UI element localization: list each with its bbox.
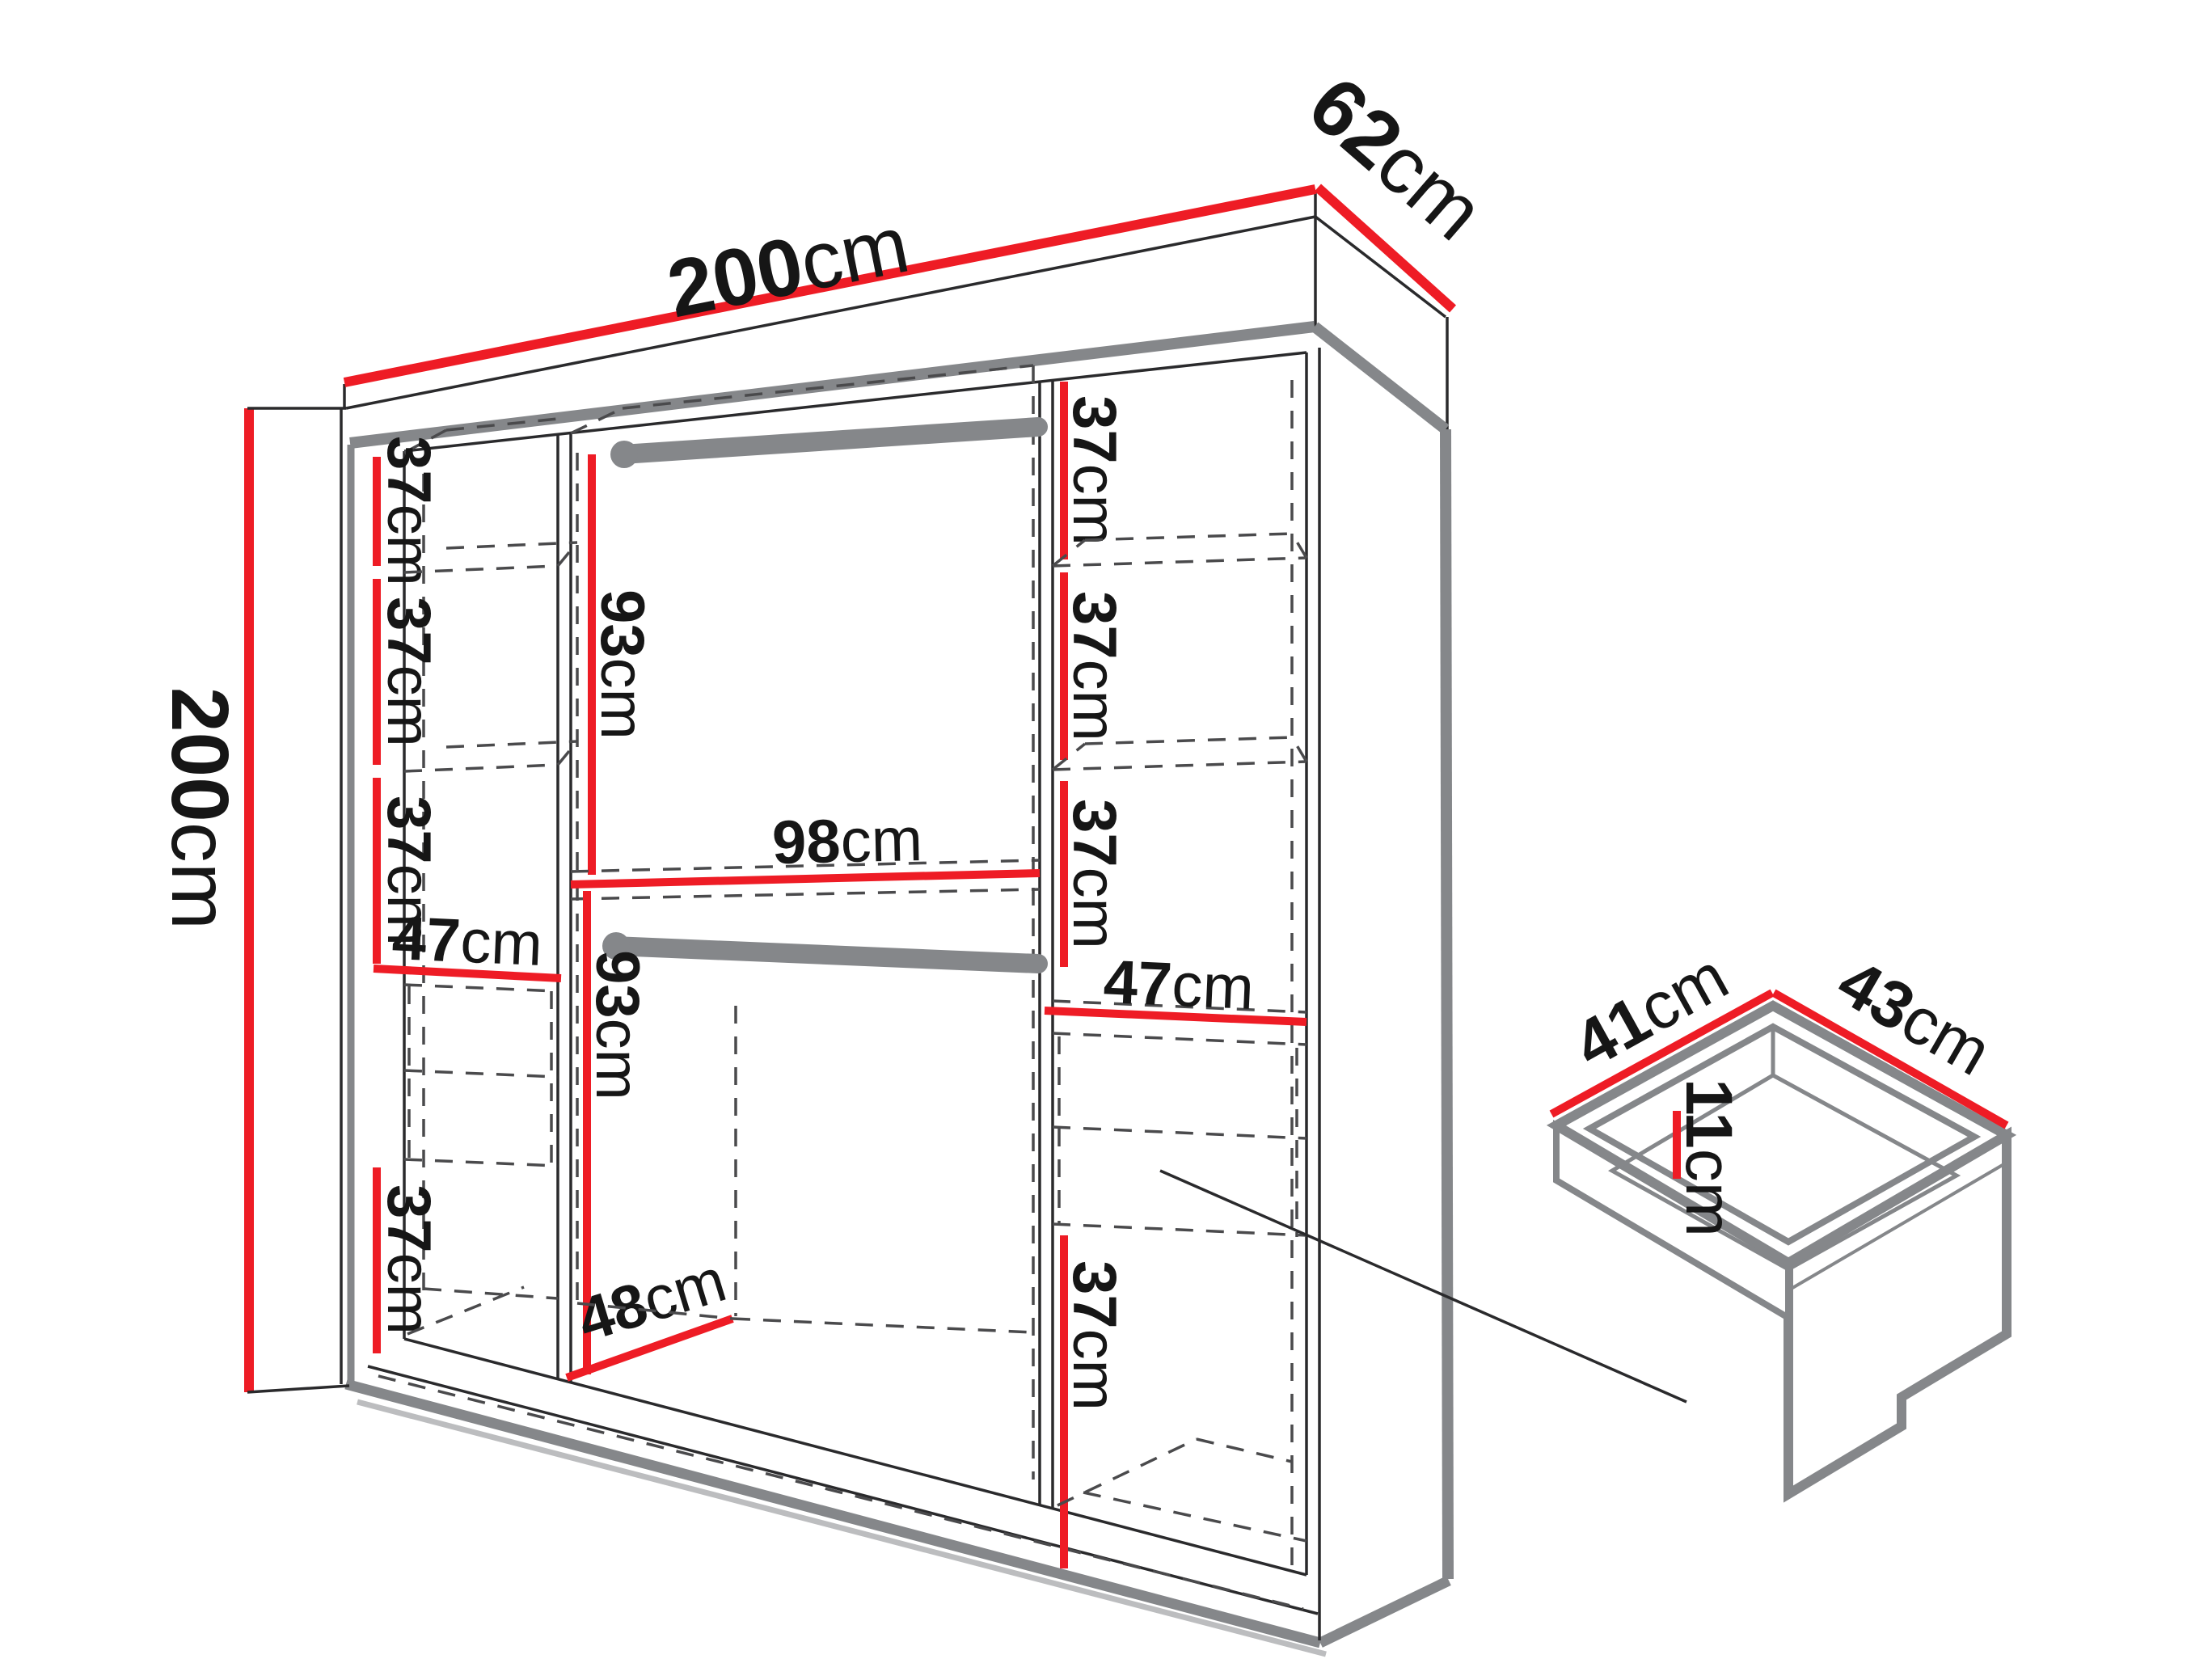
right-outer-edge bbox=[1446, 429, 1448, 1579]
middle-section: 93cm 98cm 93cm 48cm bbox=[567, 427, 1040, 1378]
left-drawer-top-dashed bbox=[404, 985, 558, 991]
right-shelf-width-label: 47cm bbox=[1102, 948, 1255, 1023]
right-floor-back-dashed bbox=[1197, 1439, 1292, 1462]
left-shelf2-dashed bbox=[404, 765, 558, 771]
middle-width-label: 98cm bbox=[771, 805, 923, 877]
right-floor-depth-dashed bbox=[1057, 1439, 1197, 1505]
right-shelf2-depth-dashed1 bbox=[1053, 744, 1085, 770]
middle-floor-back-dashed2 bbox=[732, 1319, 1033, 1332]
left-drawer-bottom-dashed bbox=[404, 1159, 558, 1166]
interior-floor bbox=[404, 1339, 1307, 1575]
right-shelf2-dashed bbox=[1053, 762, 1307, 770]
left-shelf-width-label: 47cm bbox=[390, 904, 543, 979]
left-column: 37cm 37cm 37cm 47cm 37cm bbox=[374, 436, 577, 1353]
drawer-height-label: 11cm bbox=[1672, 1079, 1746, 1237]
middle-shelf-front-dashed bbox=[571, 889, 1040, 899]
bottom-right-edge bbox=[1320, 1581, 1449, 1643]
left-shelf2-label: 37cm bbox=[374, 597, 443, 747]
left-shelf1-label: 37cm bbox=[374, 436, 443, 586]
plinth-dashed bbox=[378, 1376, 1303, 1609]
left-shelf1-depth-dashed bbox=[558, 542, 577, 566]
header-edge bbox=[350, 327, 1315, 443]
right-drawer-divider-dashed bbox=[1053, 1127, 1307, 1138]
depth-dimension-label: 62cm bbox=[1292, 60, 1501, 258]
upper-rod-end-cap bbox=[610, 441, 638, 468]
left-drawer-divider-dashed bbox=[404, 1070, 558, 1077]
upper-hanging-rod bbox=[623, 427, 1038, 454]
plinth-top-edge bbox=[368, 1366, 1318, 1614]
left-shelf2-depth-dashed bbox=[558, 741, 577, 765]
right-bottom-label: 37cm bbox=[1060, 1260, 1129, 1411]
outer-dimensions: 200cm 62cm 200cm bbox=[154, 60, 1501, 1392]
height-dimension-label: 200cm bbox=[154, 687, 245, 930]
right-shelf2-label: 37cm bbox=[1060, 591, 1129, 741]
right-shelf1-depth-dashed2 bbox=[1292, 534, 1307, 558]
lower-hanging-rod bbox=[614, 946, 1038, 964]
upper-hanging-label: 93cm bbox=[588, 589, 656, 740]
right-drawer-top-dashed bbox=[1053, 1033, 1307, 1045]
right-shelf1-label: 37cm bbox=[1060, 395, 1129, 546]
wardrobe-dimension-diagram: 200cm 62cm 200cm 37cm bbox=[0, 0, 2212, 1659]
right-drawer-bottom-dashed bbox=[1053, 1224, 1307, 1235]
drawer-detail: 41cm 43cm 11cm bbox=[1551, 939, 2007, 1494]
left-bottom-label: 37cm bbox=[374, 1184, 443, 1335]
right-shelf3-label: 37cm bbox=[1060, 799, 1129, 949]
height-dimension-tick-bottom bbox=[247, 1386, 349, 1392]
floor-depth-label: 48cm bbox=[570, 1246, 734, 1356]
bottom-shadow-edge bbox=[357, 1402, 1326, 1654]
right-column: 37cm 37cm 37cm 47cm 37cm bbox=[1045, 382, 1307, 1568]
right-shelf1-dashed bbox=[1053, 558, 1307, 566]
right-shelf2-depth-dashed2 bbox=[1292, 737, 1307, 762]
width-dimension-label: 200cm bbox=[661, 199, 916, 336]
right-floor-dashed bbox=[1083, 1492, 1307, 1541]
right-top-corner-edge bbox=[1315, 327, 1446, 429]
lower-hanging-label: 93cm bbox=[583, 950, 652, 1100]
